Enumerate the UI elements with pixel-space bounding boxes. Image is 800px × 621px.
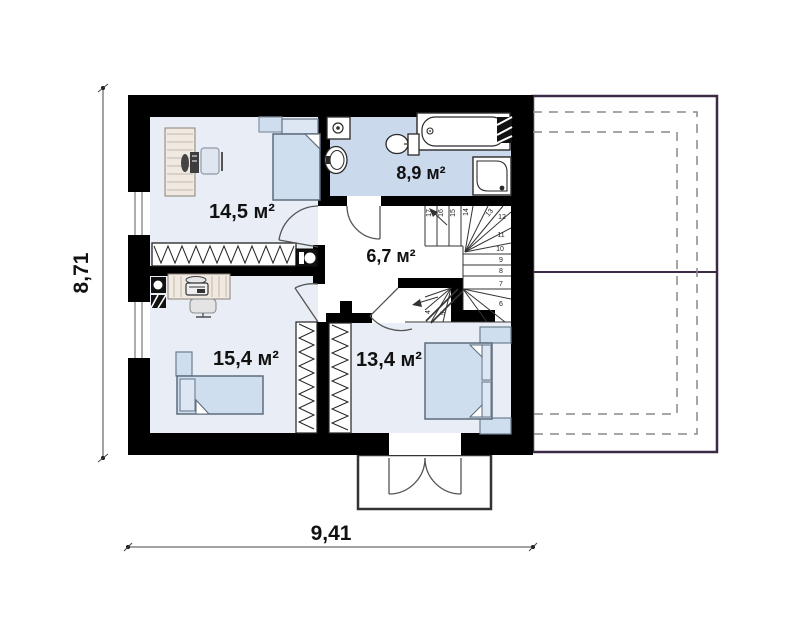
room-area-label: 14,5 м² xyxy=(209,201,275,223)
wall-between-wardrobes xyxy=(317,322,329,433)
wall-hall-south-left xyxy=(326,313,372,323)
stair-step-number: 8 xyxy=(499,268,503,275)
chair-icon xyxy=(201,148,222,174)
nightstand-icon-3 xyxy=(480,418,511,434)
pillow-icon xyxy=(282,119,318,134)
desk-lamp-icon xyxy=(181,154,189,172)
pillow-icon-2 xyxy=(180,379,195,411)
balcony-door-opening xyxy=(389,433,461,455)
stair-step-number: 16 xyxy=(438,209,445,217)
stair-step-number: 9 xyxy=(499,257,503,264)
stair-step-number: 14 xyxy=(463,208,470,216)
printer-icon xyxy=(186,277,208,296)
stair-step-number: 17 xyxy=(426,209,433,217)
window-left-lower xyxy=(128,302,150,358)
dimension-label-width: 9,41 xyxy=(311,522,352,545)
room-area-label: 6,7 м² xyxy=(366,246,415,266)
wardrobe-icon xyxy=(152,243,296,266)
washing-machine-icon xyxy=(327,117,350,139)
room-area-label: 13,4 м² xyxy=(356,349,422,371)
annex-wall-outline xyxy=(533,96,717,452)
stair-step-number: 4 xyxy=(425,310,432,314)
sink-icon xyxy=(325,147,347,174)
floor-plan-drawing: 4 5 6 7 8 9 10 11 12 13 14 15 16 17 xyxy=(0,0,800,621)
window-left-upper xyxy=(128,192,150,235)
pc-icon xyxy=(190,152,199,173)
nightstand-icon-2 xyxy=(480,327,511,343)
nightstand-icon xyxy=(176,352,192,376)
stair-step-number: 6 xyxy=(499,301,503,308)
wall-hall-south-stub xyxy=(340,301,352,313)
desk-icon xyxy=(165,128,199,196)
vent-shaft-icon xyxy=(497,117,512,143)
stair-step-number: 11 xyxy=(497,232,504,239)
pillow-icon-4 xyxy=(482,382,491,417)
stair-step-number: 15 xyxy=(450,209,457,217)
dimension-vertical xyxy=(98,84,108,462)
cabinet-icon xyxy=(151,277,166,308)
wardrobe-icon-2 xyxy=(296,322,317,433)
bed-single-icon-2 xyxy=(177,376,263,414)
wall-bath-bottom-right xyxy=(381,196,511,206)
floor-plan-page: 4 5 6 7 8 9 10 11 12 13 14 15 16 17 xyxy=(0,0,800,621)
wardrobe-icon-3 xyxy=(329,323,351,433)
pillow-icon-3 xyxy=(482,345,491,380)
bed-double-icon xyxy=(425,343,492,419)
garage-roof-outline xyxy=(533,96,717,452)
dresser-icon xyxy=(296,249,318,267)
stair-step-number: 7 xyxy=(499,281,503,288)
stair-step-number: 12 xyxy=(498,214,506,221)
toilet-icon xyxy=(386,134,419,155)
stair-step-number: 10 xyxy=(496,246,504,253)
room-area-label: 15,4 м² xyxy=(213,348,279,370)
dimension-label-height: 8,71 xyxy=(70,252,93,293)
wall-hall-south-right xyxy=(398,278,463,288)
shower-icon xyxy=(473,157,511,195)
bathtub-icon xyxy=(417,113,510,150)
shelf-icon xyxy=(259,117,282,132)
wall-bath-bottom-left xyxy=(318,196,347,206)
room-area-label: 8,9 м² xyxy=(396,163,445,183)
desk-icon-2 xyxy=(168,274,230,299)
